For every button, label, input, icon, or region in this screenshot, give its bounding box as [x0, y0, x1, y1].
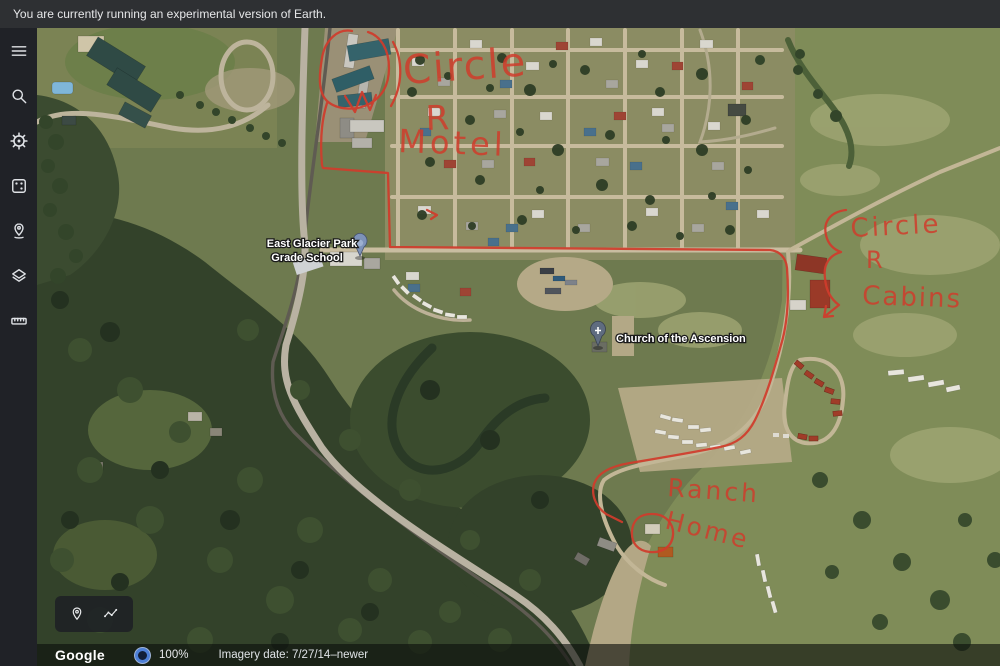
experimental-banner-text: You are currently running an experimenta… [13, 7, 326, 21]
ink-text-motel-3: Motel [398, 122, 508, 164]
my-places-button[interactable] [5, 217, 33, 245]
google-earth-window: You are currently running an experimenta… [0, 0, 1000, 666]
place-pin-icon [9, 221, 29, 241]
church-label: Church of the Ascension [616, 333, 746, 345]
terrain-base [37, 28, 1000, 666]
search-button[interactable] [5, 82, 33, 110]
ruler-icon [9, 311, 29, 331]
zoom-level: 100% [159, 649, 188, 661]
search-icon [9, 86, 29, 106]
feeling-lucky-button[interactable] [5, 172, 33, 200]
path-icon [102, 605, 120, 623]
map-style-button[interactable] [5, 262, 33, 290]
ink-text-cabins-3: Cabins [862, 281, 963, 314]
experimental-banner: You are currently running an experimenta… [0, 0, 1000, 28]
map-mini-toolbar [55, 596, 133, 632]
ink-text-motel-1: Circle [401, 39, 528, 94]
map-viewport[interactable]: East Glacier Park Grade School Church of… [37, 28, 1000, 666]
ink-text-cabins-1: Circle [850, 209, 942, 244]
satellite-imagery: East Glacier Park Grade School Church of… [37, 28, 1000, 666]
status-bar: Google 100% Imagery date: 7/27/14–newer [37, 644, 1000, 666]
compass-ring-icon[interactable] [135, 648, 150, 663]
measure-button[interactable] [5, 307, 33, 335]
ink-text-cabins-2: R [866, 246, 883, 274]
google-logo: Google [55, 647, 105, 663]
my-location-button[interactable] [67, 604, 87, 624]
imagery-date: Imagery date: 7/27/14–newer [218, 649, 368, 661]
layers-icon [9, 266, 29, 286]
path-button[interactable] [101, 604, 121, 624]
my-location-icon [68, 605, 86, 623]
voyager-button[interactable] [5, 127, 33, 155]
menu-icon [9, 41, 29, 61]
dice-icon [9, 176, 29, 196]
school-label-line1: East Glacier Park [267, 238, 358, 250]
ship-wheel-icon [8, 130, 30, 152]
school-label-line2: Grade School [271, 252, 343, 264]
left-toolbar [0, 28, 37, 666]
menu-button[interactable] [5, 37, 33, 65]
